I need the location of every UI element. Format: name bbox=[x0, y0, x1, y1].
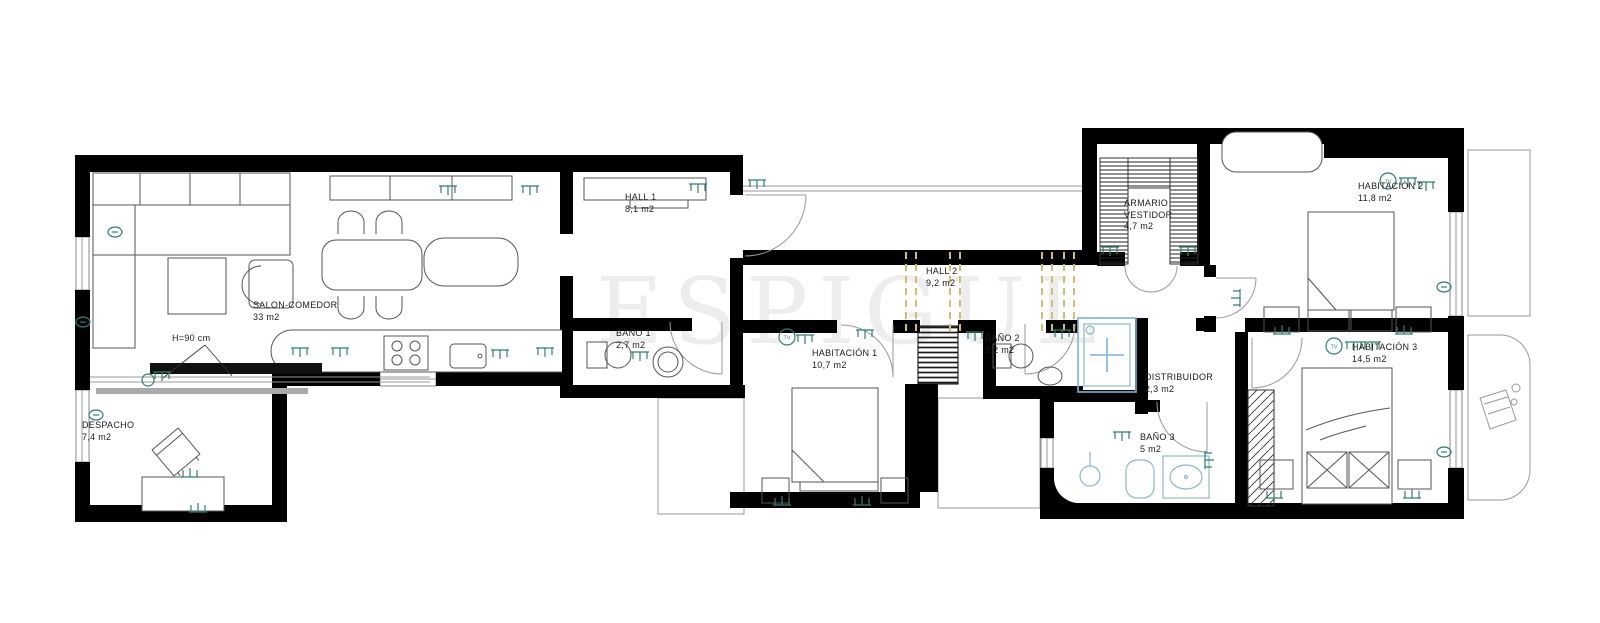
room-name: DISTRIBUIDOR bbox=[1145, 372, 1213, 384]
wall-lamp-icon bbox=[1437, 447, 1451, 457]
room-name: HALL 2 bbox=[926, 266, 958, 278]
room-area: 10,7 m2 bbox=[812, 360, 877, 372]
room-label-habitacion-2: HABITACIÓN 2 11,8 m2 bbox=[1358, 181, 1423, 204]
room-label-despacho: DESPACHO 7,4 m2 bbox=[82, 420, 134, 443]
room-name: HABITACIÓN 3 bbox=[1352, 342, 1417, 354]
furniture-bano3 bbox=[1080, 452, 1209, 498]
room-label-habitacion-3: HABITACIÓN 3 14,5 m2 bbox=[1352, 342, 1417, 365]
outlet-icon bbox=[1113, 432, 1131, 441]
room-name: HABITACIÓN 1 bbox=[812, 348, 877, 360]
shower-drain bbox=[1080, 466, 1100, 486]
room-name: HALL 1 bbox=[625, 192, 657, 204]
toilet bbox=[587, 342, 607, 368]
sink bbox=[1038, 367, 1062, 385]
wall-fillet bbox=[1054, 479, 1079, 503]
room-label-bano-1: BAÑO 1 2,7 m2 bbox=[616, 328, 651, 351]
canopy bbox=[1222, 132, 1322, 172]
entrance-door bbox=[745, 195, 806, 256]
svg-text:TV: TV bbox=[783, 336, 790, 342]
wardrobe-right bbox=[1170, 158, 1198, 264]
room-name: BAÑO 1 bbox=[616, 328, 651, 340]
outlet-icon bbox=[181, 468, 199, 477]
outlet-icon bbox=[439, 186, 457, 195]
closet-habitacion-1 bbox=[918, 326, 958, 384]
outlet-icon bbox=[631, 352, 649, 361]
room-area: 11,8 m2 bbox=[1358, 193, 1423, 205]
shower bbox=[1078, 318, 1136, 392]
furniture-despacho bbox=[142, 428, 224, 511]
room-area: 8,1 m2 bbox=[625, 204, 657, 216]
outlet-icon bbox=[521, 186, 539, 195]
room-name-2: VESTIDOR bbox=[1124, 210, 1172, 222]
armario-double-door bbox=[1125, 266, 1177, 292]
outlet-icon bbox=[966, 332, 984, 341]
furniture-habitacion3 bbox=[1260, 368, 1431, 504]
bed bbox=[1308, 212, 1394, 310]
room-area: 7,4 m2 bbox=[82, 432, 134, 444]
room-name: HABITACIÓN 2 bbox=[1358, 181, 1423, 193]
bed bbox=[792, 388, 878, 482]
room-area: 4,7 m2 bbox=[1124, 221, 1172, 233]
dining-chairs bbox=[338, 211, 402, 319]
sideboard bbox=[330, 176, 512, 200]
gallery-top-right bbox=[1468, 150, 1530, 316]
room-label-bano-2: BAÑO 2 3,2 m2 bbox=[985, 333, 1020, 356]
floor-plan: ESPIGUL bbox=[0, 0, 1600, 623]
room-label-salon-comedor: SALON-COMEDOR 33 m2 bbox=[253, 300, 337, 323]
gallery-chair bbox=[1480, 390, 1516, 429]
wardrobe-top bbox=[1128, 158, 1170, 188]
dining-table bbox=[322, 240, 422, 290]
sink bbox=[1170, 465, 1202, 489]
room-label-hall-2: HALL 2 9,2 m2 bbox=[926, 266, 958, 289]
nightstand bbox=[1398, 460, 1431, 489]
room-area: 9,2 m2 bbox=[926, 278, 958, 290]
wall-lamp-icon bbox=[89, 410, 103, 420]
room-label-bano-3: BAÑO 3 5 m2 bbox=[1140, 432, 1175, 455]
floor-plan-drawing: TV TV TV bbox=[0, 0, 1600, 623]
outlet-icon bbox=[748, 180, 766, 189]
room-label-distribuidor: DISTRIBUIDOR 2,3 m2 bbox=[1145, 372, 1213, 395]
room-label-hall-1: HALL 1 8,1 m2 bbox=[625, 192, 657, 215]
habitacion3-door bbox=[1252, 338, 1302, 388]
room-name: ARMARIO bbox=[1124, 198, 1172, 210]
room-area: 5 m2 bbox=[1140, 444, 1175, 456]
room-name: DESPACHO bbox=[82, 420, 134, 432]
room-label-habitacion-1: HABITACIÓN 1 10,7 m2 bbox=[812, 348, 877, 371]
outlet-icon bbox=[796, 335, 814, 344]
tv-icon: TV bbox=[1326, 338, 1342, 354]
outlet-icon bbox=[1403, 489, 1421, 498]
room-area: 2,3 m2 bbox=[1145, 384, 1213, 396]
svg-text:TV: TV bbox=[1330, 345, 1337, 351]
room-name: SALON-COMEDOR bbox=[253, 300, 337, 312]
lightwell bbox=[938, 398, 1040, 508]
outlet-icon bbox=[689, 184, 707, 193]
furniture-salon bbox=[90, 173, 562, 394]
furniture-habitacion1 bbox=[762, 388, 908, 503]
room-name: BAÑO 3 bbox=[1140, 432, 1175, 444]
room-area: 14,5 m2 bbox=[1352, 354, 1417, 366]
coffee-table bbox=[168, 258, 226, 314]
furniture-gallery bbox=[1480, 384, 1520, 429]
annotation-h90: H=90 cm bbox=[172, 333, 210, 345]
dining-table-2 bbox=[424, 238, 518, 286]
furniture-habitacion2 bbox=[1222, 132, 1431, 332]
sideboard-despacho bbox=[96, 388, 308, 394]
room-area: 2,7 m2 bbox=[616, 340, 651, 352]
tv-unit bbox=[150, 363, 322, 374]
desk-chair bbox=[152, 428, 202, 479]
outlet-icon bbox=[1231, 289, 1240, 307]
room-area: 33 m2 bbox=[253, 312, 337, 324]
desk bbox=[142, 477, 224, 511]
gallery-bottom-right bbox=[1468, 335, 1530, 500]
room-label-armario-vestidor: ARMARIO VESTIDOR 4,7 m2 bbox=[1124, 198, 1172, 233]
wall-lamp-icon bbox=[1437, 282, 1451, 292]
room-area: 3,2 m2 bbox=[985, 345, 1020, 357]
toilet bbox=[1126, 460, 1154, 498]
room-name: BAÑO 2 bbox=[985, 333, 1020, 345]
